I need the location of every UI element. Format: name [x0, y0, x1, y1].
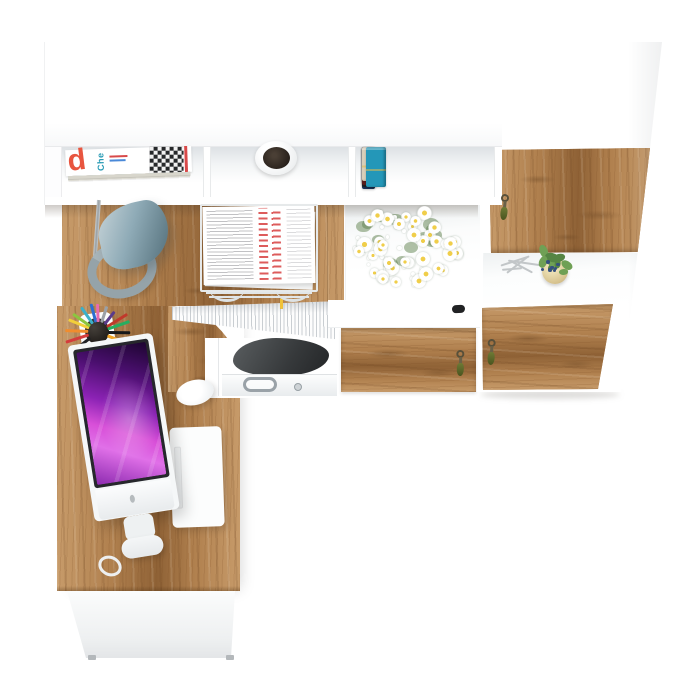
drawer-knob: [294, 383, 302, 391]
product-render-office-desk-set: d Che: [0, 0, 700, 700]
pencil: [108, 331, 130, 334]
magazine-edge-stripe: [184, 146, 188, 172]
daisy-bouquet: [348, 198, 474, 294]
daisy-flower: [433, 263, 444, 274]
magazine-text-line: [109, 155, 127, 158]
babys-breath-bud: [402, 229, 405, 232]
drawer-handle: [243, 377, 277, 392]
daisy-flower: [371, 209, 384, 222]
door-key-lower-right: [483, 339, 499, 367]
plant-berry: [556, 263, 560, 267]
key-tassel: [457, 363, 464, 376]
daisy-flower: [400, 257, 410, 267]
key-tassel: [487, 352, 495, 365]
desk-foot-right: [226, 655, 234, 660]
daisy-flower: [378, 240, 388, 250]
greenery-leaf: [404, 242, 418, 253]
pencil: [96, 304, 99, 322]
pencil: [65, 330, 88, 333]
wall-hutch: d Che: [45, 42, 502, 205]
magazine-text-line: [110, 159, 126, 162]
desk-front-panel: [60, 591, 240, 659]
magazine-cover-letter: d: [66, 145, 88, 177]
daisy-flower: [378, 274, 388, 284]
hutch-left-wall: [45, 147, 62, 197]
hutch-right-wall: [494, 147, 502, 197]
daisy-flower: [410, 216, 420, 226]
compartment-divider: [218, 338, 219, 396]
book-spine: [366, 147, 386, 187]
desk-front-edge: [57, 586, 240, 591]
planter-soil: [263, 147, 290, 169]
desk-panel-seam: [327, 207, 328, 305]
book-row: [356, 147, 494, 197]
desk-foot-left: [88, 655, 96, 660]
magazine-cover-text: Che: [95, 152, 106, 171]
daisy-flower: [419, 267, 433, 281]
hutch-compartment-magazines: d Che: [62, 147, 203, 197]
door-key-upper: [496, 193, 513, 221]
cabinet-door-lower: [482, 304, 613, 390]
daisy-flower: [354, 246, 364, 256]
twig-branch: [502, 267, 522, 270]
cabinet-door-upper: [489, 148, 651, 253]
round-planter: [255, 141, 297, 175]
babys-breath-bud: [386, 235, 389, 238]
daisy-flower: [391, 277, 401, 287]
storage-drawer: [222, 374, 337, 396]
magazine-checker-art: [150, 147, 184, 173]
hutch-divider: [203, 147, 211, 197]
hutch-top-panel: [45, 42, 502, 147]
keyboard-keys: [183, 430, 220, 523]
daisy-flower: [393, 218, 405, 230]
door-key-sideboard: [453, 350, 468, 377]
key-tassel: [500, 207, 508, 221]
daisy-flower: [428, 221, 441, 234]
daisy-flower: [444, 237, 457, 250]
hutch-divider: [348, 147, 356, 197]
babys-breath-bud: [380, 225, 384, 229]
magazine-stack: d Che: [65, 146, 193, 198]
babys-breath-bud: [367, 263, 370, 266]
berry-plant-in-pot: [524, 244, 578, 288]
babys-breath-bud: [397, 246, 401, 250]
daisy-flower: [416, 252, 430, 266]
letter-tray-wire-frame: [200, 204, 318, 292]
plant-berry: [546, 260, 550, 264]
cabinet-side-shading: [628, 42, 665, 394]
shelf-knob: [452, 305, 466, 314]
